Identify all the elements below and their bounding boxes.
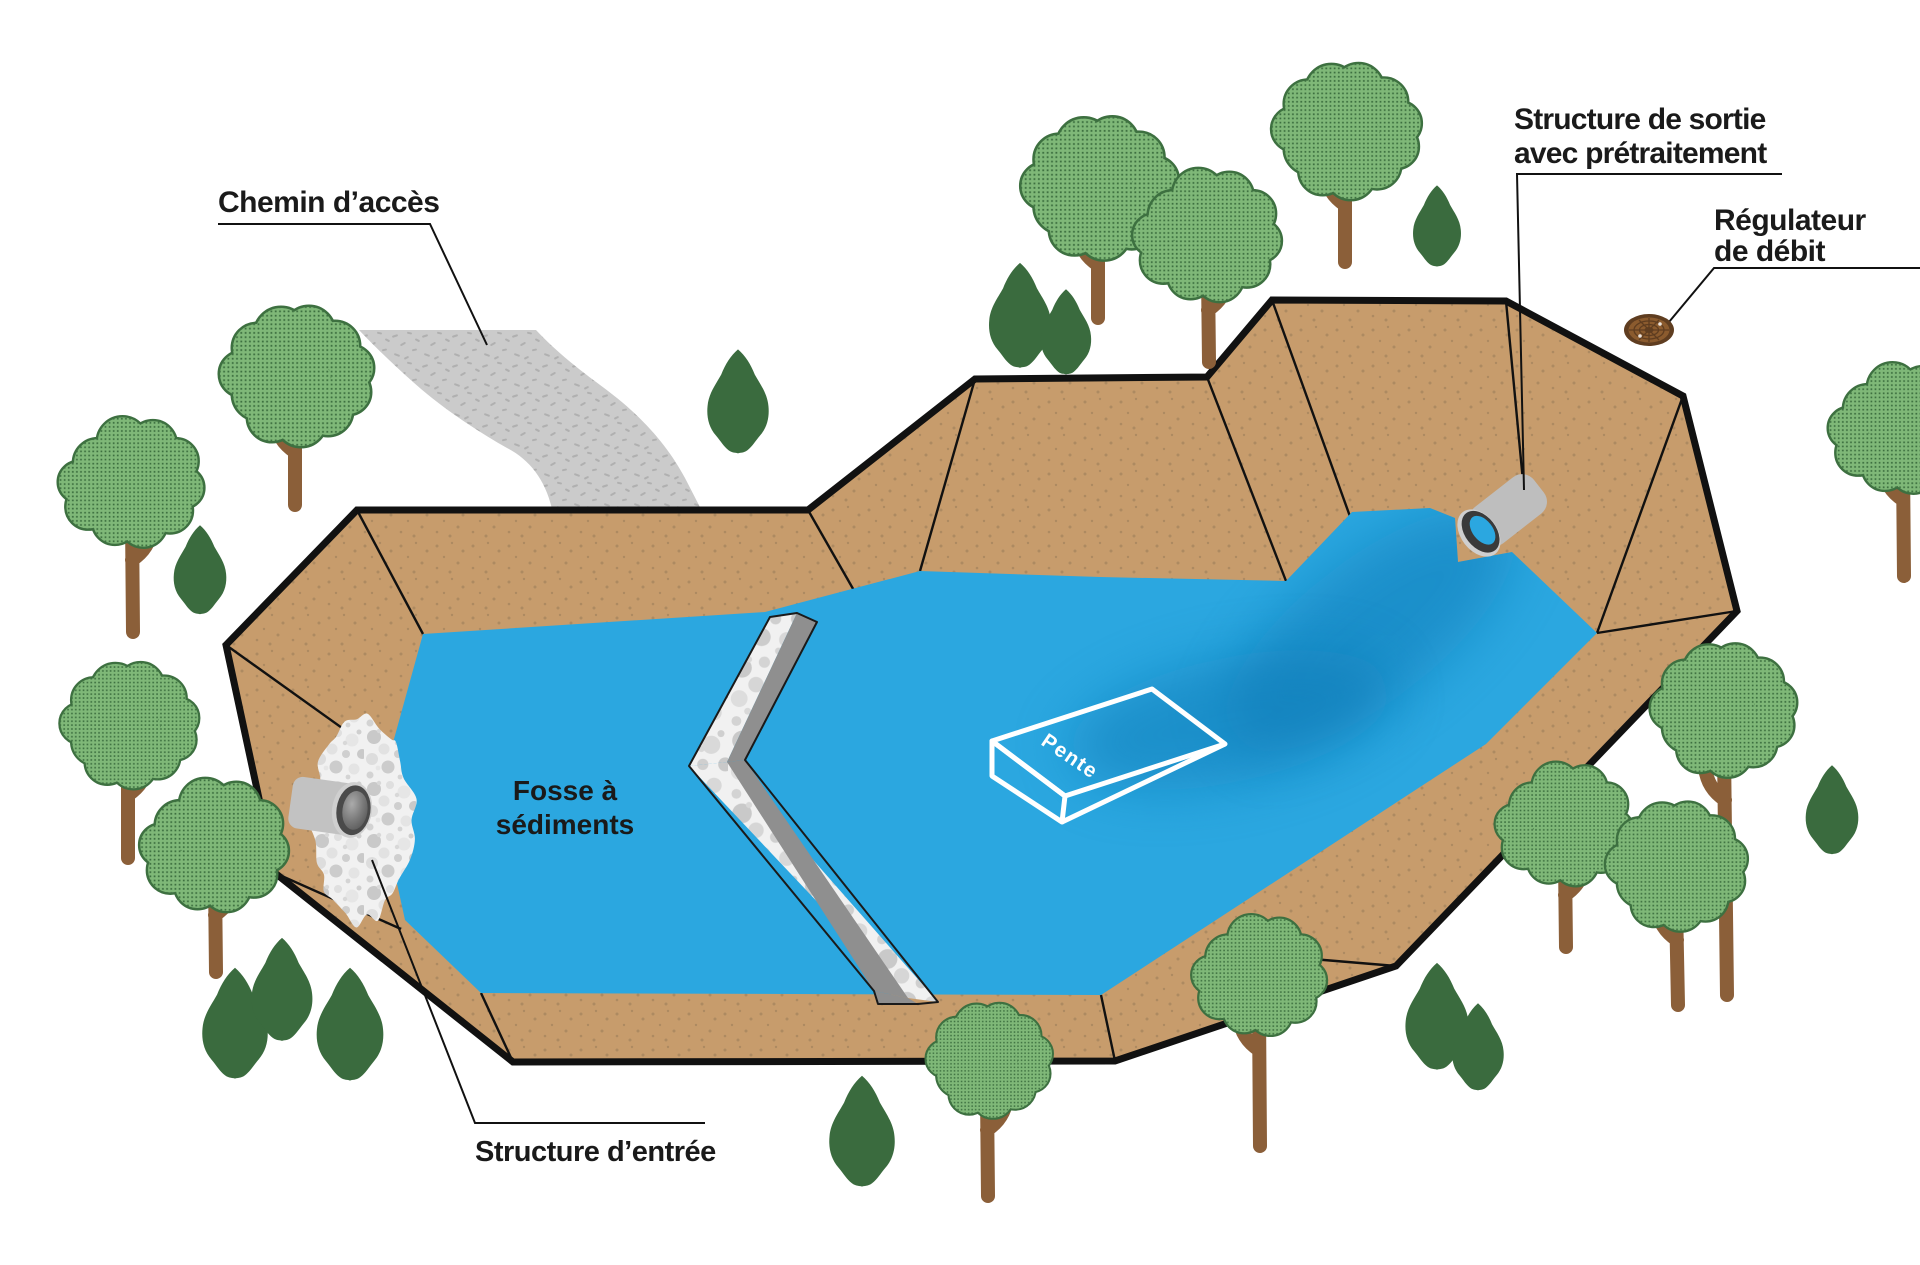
svg-text:Chemin d’accès: Chemin d’accès <box>218 186 439 219</box>
svg-text:Structure d’entrée: Structure d’entrée <box>475 1136 716 1168</box>
svg-text:Structure de sortie: Structure de sortie <box>1514 103 1766 136</box>
svg-text:sédiments: sédiments <box>496 809 635 840</box>
svg-text:Fosse à: Fosse à <box>513 775 618 806</box>
svg-text:avec prétraitement: avec prétraitement <box>1514 137 1767 170</box>
svg-text:de débit: de débit <box>1714 235 1826 268</box>
svg-text:Régulateur: Régulateur <box>1714 204 1867 237</box>
